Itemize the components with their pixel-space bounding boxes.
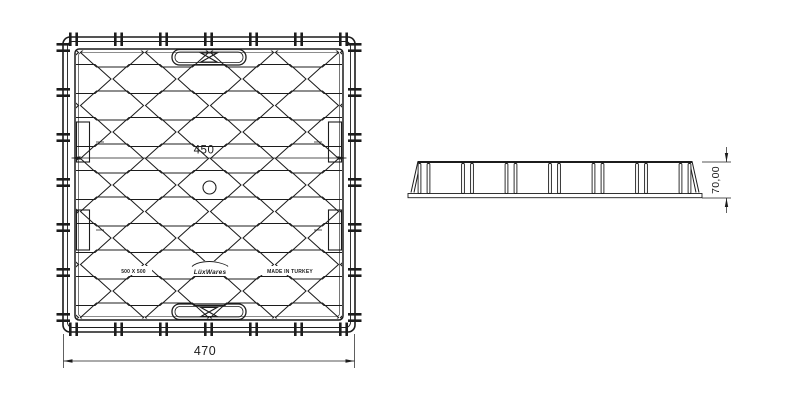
frame-tick [120, 323, 123, 337]
hex-cell [341, 38, 404, 67]
dimension-70: 70,00 [702, 147, 731, 213]
frame-tick [294, 323, 297, 337]
rib [418, 164, 421, 194]
rib [558, 164, 561, 194]
rib-group [418, 164, 691, 194]
hex-cell [243, 171, 306, 200]
rib [688, 164, 691, 194]
rib [505, 164, 508, 194]
frame-tick [345, 33, 348, 47]
frame-tick [75, 323, 78, 337]
hex-cell [146, 91, 209, 120]
frame-tick [75, 33, 78, 47]
hex-cell [276, 91, 339, 120]
rib [636, 164, 639, 194]
frame-tick [114, 33, 117, 47]
plan-view: 450 470 500 X 500 LüxWares MADE IN TURKE… [16, 33, 404, 369]
frame-tick [114, 323, 117, 337]
rib [462, 164, 465, 194]
hex-cell [113, 171, 176, 200]
hex-cell [178, 224, 241, 253]
hex-cell [178, 118, 241, 147]
frame-tick [120, 33, 123, 47]
hex-cell [113, 224, 176, 253]
frame-tick [294, 33, 297, 47]
hex-cell [48, 277, 111, 306]
frame-tick [69, 323, 72, 337]
hex-cell [16, 144, 79, 173]
hex-cell [16, 197, 79, 226]
hex-cell [341, 197, 404, 226]
hex-cell [243, 65, 306, 94]
technical-drawing: 450 470 500 X 500 LüxWares MADE IN TURKE… [0, 0, 800, 400]
frame-tick [159, 33, 162, 47]
frame-tick [339, 323, 342, 337]
hex-cell [211, 91, 274, 120]
dim-arrow-icon [346, 359, 355, 362]
hex-cell [243, 224, 306, 253]
hex-pattern [16, 38, 404, 332]
dimension-70-label: 70,00 [710, 166, 722, 194]
dim-arrow-icon [725, 198, 728, 207]
frame-tick [339, 33, 342, 47]
right-chamfer [690, 162, 699, 193]
dim-arrow-icon [725, 153, 728, 162]
hex-cell [113, 65, 176, 94]
frame-tick [165, 323, 168, 337]
hex-cell [178, 277, 241, 306]
rib [679, 164, 682, 194]
dimension-470-label: 470 [194, 344, 216, 358]
frame-tick [255, 33, 258, 47]
hex-cell [113, 277, 176, 306]
hex-cell [243, 277, 306, 306]
rib [427, 164, 430, 194]
dim-arrow-icon [64, 359, 73, 362]
frame-tick [165, 33, 168, 47]
brand-text: LüxWares [194, 269, 227, 276]
frame-tick [159, 323, 162, 337]
hex-cell [211, 197, 274, 226]
dimension-470: 470 [64, 334, 355, 368]
frame-tick [204, 323, 207, 337]
frame-tick [210, 33, 213, 47]
hex-cell [178, 65, 241, 94]
hex-cell [341, 144, 404, 173]
hex-cell [48, 224, 111, 253]
hex-cell [113, 118, 176, 147]
rib [645, 164, 648, 194]
side-view: 70,00 [408, 147, 731, 213]
rib [471, 164, 474, 194]
frame-tick [210, 323, 213, 337]
drawing-canvas: 450 470 500 X 500 LüxWares MADE IN TURKE… [0, 0, 800, 400]
hex-cell [146, 197, 209, 226]
dimension-450: 450 [72, 145, 347, 160]
frame-ticks [57, 33, 362, 337]
hex-cell [211, 144, 274, 173]
frame-tick [249, 323, 252, 337]
hex-cell [341, 303, 404, 332]
dimension-450-label: 450 [194, 145, 215, 157]
frame-tick [300, 323, 303, 337]
hex-cell [81, 91, 144, 120]
rib [592, 164, 595, 194]
handle-slot-top [172, 50, 246, 66]
rib [549, 164, 552, 194]
cover-markings: 500 X 500 LüxWares MADE IN TURKEY [115, 261, 322, 276]
bowtie-icon [201, 308, 217, 317]
frame-tick [249, 33, 252, 47]
hex-cell [178, 171, 241, 200]
origin-marking: MADE IN TURKEY [267, 269, 313, 275]
handle-slot-bottom [172, 304, 246, 320]
frame-tick [255, 323, 258, 337]
brand-logo: LüxWares [186, 261, 234, 276]
frame-tick [300, 33, 303, 47]
rib [601, 164, 604, 194]
frame-tick [204, 33, 207, 47]
rib [514, 164, 517, 194]
frame-tick [345, 323, 348, 337]
center-hole [203, 181, 216, 194]
hex-cell [243, 118, 306, 147]
base-flange [408, 194, 702, 198]
size-marking: 500 X 500 [121, 269, 146, 275]
